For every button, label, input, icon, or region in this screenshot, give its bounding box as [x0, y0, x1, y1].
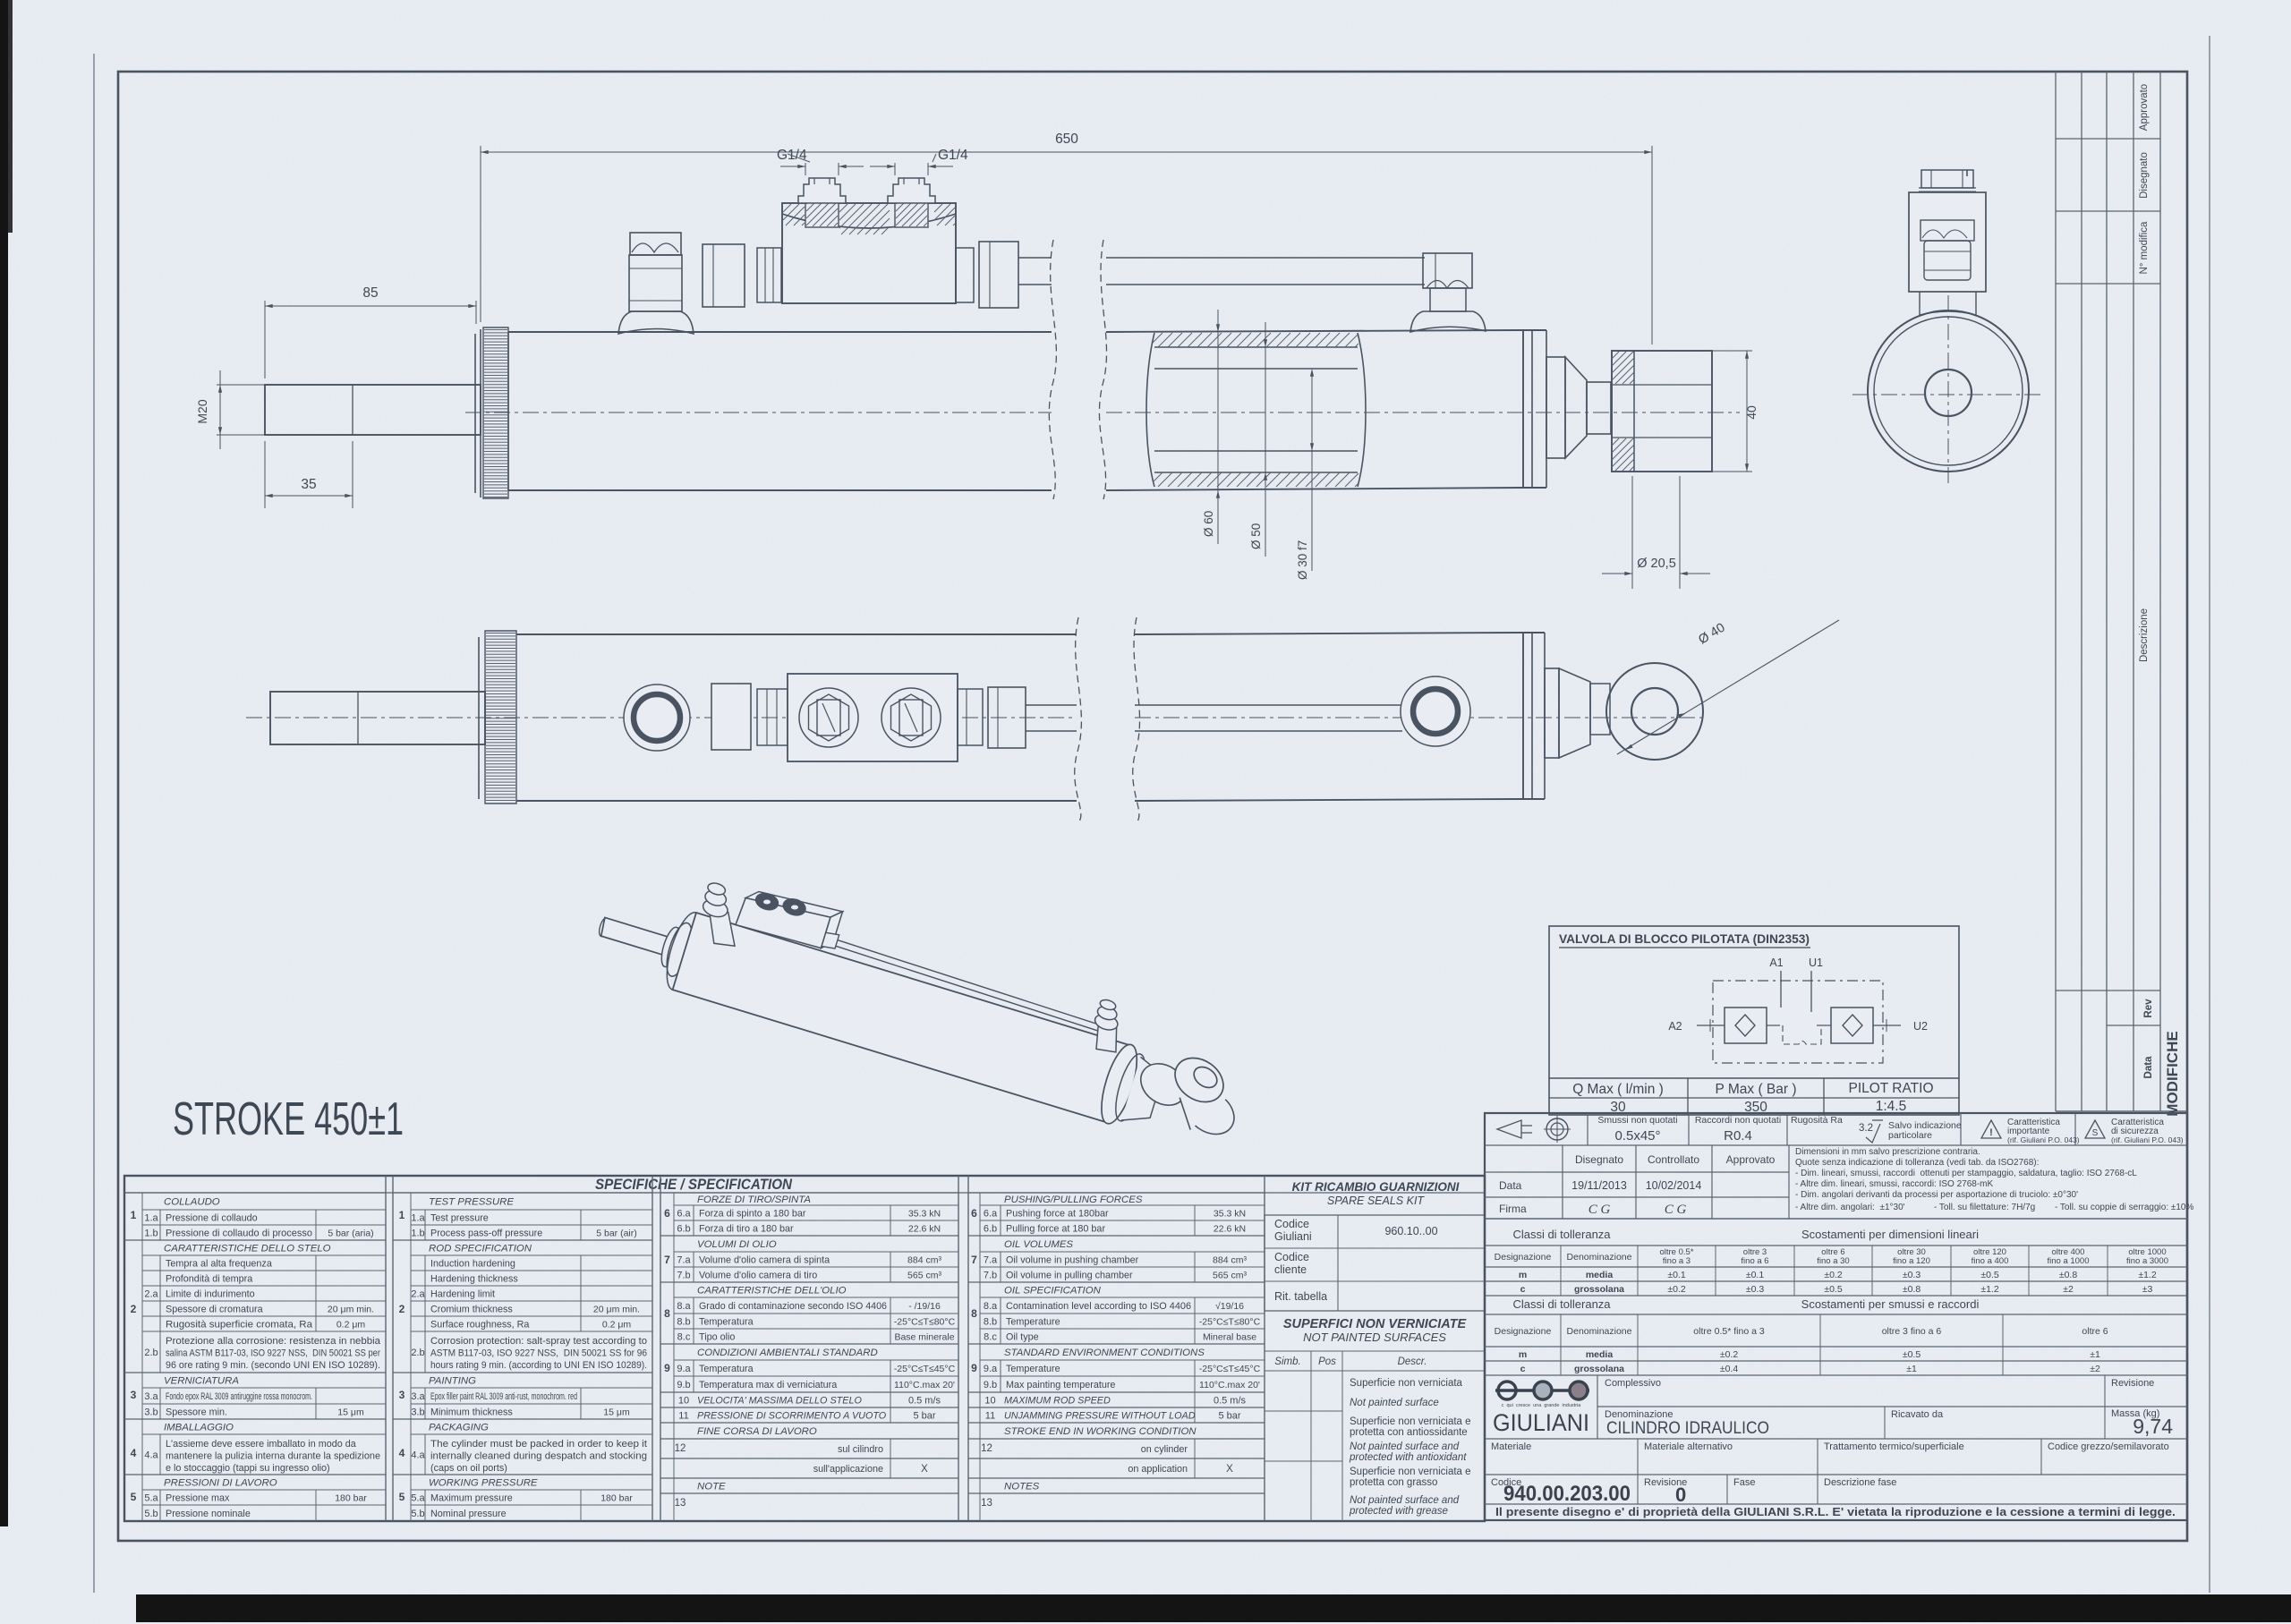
svg-text:Simb.: Simb. [1274, 1356, 1300, 1367]
svg-text:940.00.203.00: 940.00.203.00 [1503, 1482, 1631, 1506]
svg-text:Codice: Codice [1274, 1251, 1309, 1263]
svg-text:sull'applicazione: sull'applicazione [813, 1464, 883, 1475]
svg-text:- Altre dim. angolari: ±1°30': - Altre dim. angolari: ±1°30' [1795, 1203, 1905, 1212]
svg-text:VERNICIATURA: VERNICIATURA [164, 1376, 239, 1387]
svg-text:Designazione: Designazione [1495, 1252, 1552, 1263]
svg-text:Forza di spinto a 180 bar: Forza di spinto a 180 bar [699, 1209, 806, 1220]
svg-text:m: m [1519, 1349, 1527, 1360]
svg-text:Data: Data [2143, 1056, 2154, 1079]
svg-text:on application: on application [1128, 1464, 1188, 1475]
svg-text:6: 6 [971, 1207, 977, 1220]
svg-text:9.b: 9.b [677, 1380, 690, 1390]
svg-text:(rif. Giuliani P.O. 043): (rif. Giuliani P.O. 043) [2111, 1135, 2184, 1144]
svg-text:Approvato: Approvato [2139, 84, 2150, 131]
svg-text:SPECIFICHE / SPECIFICATION: SPECIFICHE / SPECIFICATION [595, 1176, 793, 1193]
svg-text:Fase: Fase [1733, 1477, 1755, 1488]
svg-text:Classi di tolleranza: Classi di tolleranza [1512, 1297, 1611, 1311]
svg-text:UNJAMMING PRESSURE WITHOUT LOA: UNJAMMING PRESSURE WITHOUT LOAD [1004, 1411, 1196, 1422]
svg-text:Superficie non verniciata e: Superficie non verniciata e [1350, 1416, 1471, 1427]
svg-text:15 μm: 15 μm [603, 1407, 630, 1418]
svg-text:G1/4: G1/4 [938, 148, 968, 163]
svg-text:VALVOLA DI BLOCCO PILOTATA (DI: VALVOLA DI BLOCCO PILOTATA (DIN2353) [1559, 932, 1810, 946]
svg-text:Classi di tolleranza: Classi di tolleranza [1512, 1228, 1611, 1241]
svg-text:Hardening thickness: Hardening thickness [430, 1274, 518, 1285]
svg-text:Pushing force at 180bar: Pushing force at 180bar [1006, 1209, 1109, 1220]
svg-text:11: 11 [985, 1411, 995, 1422]
svg-text:Protezione alla corrosione: re: Protezione alla corrosione: resistenza i… [166, 1336, 380, 1347]
svg-text:Maximum pressure: Maximum pressure [430, 1493, 513, 1504]
svg-text:NOT PAINTED SURFACES: NOT PAINTED SURFACES [1303, 1331, 1446, 1344]
svg-text:PRESSIONE DI SCORRIMENTO A VUO: PRESSIONE DI SCORRIMENTO A VUOTO [697, 1411, 887, 1422]
svg-text:11: 11 [678, 1411, 688, 1422]
svg-text:- Altre dim. lineari, smussi,: - Altre dim. lineari, smussi, raccordi: … [1795, 1179, 1994, 1189]
svg-text:Induction hardening: Induction hardening [430, 1259, 515, 1270]
svg-text:3.b: 3.b [411, 1407, 424, 1418]
svg-text:5.b: 5.b [411, 1509, 424, 1519]
svg-text:Denominazione: Denominazione [1567, 1326, 1632, 1337]
svg-text:R0.4: R0.4 [1724, 1128, 1752, 1144]
svg-text:±1: ±1 [2090, 1349, 2100, 1360]
svg-text:- Dim. angolari derivanti da p: - Dim. angolari derivanti da processi pe… [1795, 1190, 2078, 1200]
svg-text:Fondo epox RAL 3009 antiruggin: Fondo epox RAL 3009 antiruggine rossa mo… [166, 1391, 312, 1402]
svg-text:- Dim. lineari, smussi, raccor: - Dim. lineari, smussi, raccordi ottenut… [1795, 1169, 2137, 1178]
svg-text:1.b: 1.b [144, 1229, 158, 1239]
svg-text:√19/16: √19/16 [1215, 1301, 1244, 1312]
svg-text:110°C.max 20': 110°C.max 20' [1199, 1380, 1260, 1390]
svg-text:4.a: 4.a [411, 1450, 425, 1461]
svg-text:The cylinder must be packed in: The cylinder must be packed in order to … [430, 1439, 647, 1450]
svg-text:Ø 60: Ø 60 [1202, 511, 1215, 537]
svg-text:9.b: 9.b [984, 1380, 997, 1390]
svg-text:Disegnato: Disegnato [2139, 152, 2150, 199]
svg-text:3.a: 3.a [144, 1391, 158, 1402]
svg-text:1:4.5: 1:4.5 [1876, 1099, 1906, 1114]
svg-text:N° modifica: N° modifica [2139, 221, 2150, 275]
svg-text:fino a 120: fino a 120 [1893, 1256, 1930, 1266]
svg-text:mantenere la pulizia interna d: mantenere la pulizia interna durante la … [166, 1451, 380, 1462]
svg-text:Ø 30 f7: Ø 30 f7 [1296, 540, 1309, 580]
svg-text:oltre 3 fino a 6: oltre 3 fino a 6 [1882, 1326, 1942, 1337]
svg-text:Revisione: Revisione [2111, 1378, 2154, 1389]
svg-text:fino a 3: fino a 3 [1663, 1256, 1691, 1266]
svg-text:NOTES: NOTES [1004, 1482, 1040, 1492]
svg-text:Pressione max: Pressione max [166, 1493, 230, 1504]
svg-text:Smussi non quotati: Smussi non quotati [1597, 1115, 1677, 1126]
svg-text:884 cm³: 884 cm³ [907, 1255, 941, 1266]
svg-text:C G: C G [1665, 1203, 1687, 1217]
svg-text:SUPERFICI NON VERNICIATE: SUPERFICI NON VERNICIATE [1283, 1317, 1468, 1331]
svg-text:Test pressure: Test pressure [430, 1213, 489, 1224]
svg-text:L'assieme deve essere imballat: L'assieme deve essere imballato in modo … [166, 1439, 356, 1450]
svg-text:c qui cresce una grande i: c qui cresce una grande industria [1502, 1403, 1582, 1408]
svg-text:Superficie non verniciata e: Superficie non verniciata e [1350, 1467, 1471, 1477]
svg-text:STROKE END IN WORKING CONDITIO: STROKE END IN WORKING CONDITION [1004, 1426, 1197, 1437]
svg-text:22.6 kN: 22.6 kN [908, 1224, 941, 1235]
svg-text:9: 9 [971, 1362, 977, 1374]
svg-text:Rev: Rev [2143, 999, 2154, 1018]
svg-text:3.b: 3.b [144, 1407, 158, 1418]
svg-text:Temperatura max di verniciatur: Temperatura max di verniciatura [699, 1380, 837, 1390]
svg-text:c: c [1520, 1284, 1526, 1295]
svg-text:media: media [1586, 1270, 1614, 1280]
svg-text:110°C.max 20': 110°C.max 20' [894, 1380, 955, 1390]
svg-text:±0.1: ±0.1 [1667, 1270, 1686, 1280]
svg-text:±0.1: ±0.1 [1746, 1270, 1765, 1280]
svg-text:CONDIZIONI AMBIENTALI STANDARD: CONDIZIONI AMBIENTALI STANDARD [697, 1348, 878, 1358]
svg-text:2.a: 2.a [144, 1289, 158, 1300]
svg-text:6.b: 6.b [984, 1224, 997, 1235]
svg-text:2: 2 [131, 1303, 137, 1315]
svg-text:Tempra al alta frequenza: Tempra al alta frequenza [166, 1259, 272, 1270]
svg-text:7.b: 7.b [984, 1271, 997, 1281]
svg-text:Profondità di tempra: Profondità di tempra [166, 1274, 252, 1285]
svg-text:U2: U2 [1913, 1020, 1928, 1033]
svg-text:Temperature: Temperature [1006, 1364, 1060, 1374]
svg-text:Oil type: Oil type [1006, 1332, 1039, 1343]
svg-text:Ø 20,5: Ø 20,5 [1637, 557, 1676, 571]
svg-text:Rit. tabella: Rit. tabella [1274, 1290, 1327, 1303]
svg-text:5 bar (air): 5 bar (air) [596, 1229, 637, 1239]
svg-text:7.b: 7.b [677, 1271, 690, 1281]
svg-text:Not painted surface and: Not painted surface and [1350, 1441, 1460, 1452]
svg-text:4: 4 [131, 1447, 137, 1459]
svg-text:-25°C≤T≤45°C: -25°C≤T≤45°C [1199, 1364, 1261, 1374]
svg-text:-25°C≤T≤45°C: -25°C≤T≤45°C [894, 1364, 956, 1374]
svg-text:1: 1 [131, 1209, 137, 1221]
svg-text:7.a: 7.a [677, 1255, 691, 1266]
svg-text:PAINTING: PAINTING [429, 1376, 476, 1387]
svg-text:CILINDRO IDRAULICO: CILINDRO IDRAULICO [1606, 1418, 1769, 1438]
svg-text:7: 7 [664, 1254, 670, 1266]
svg-text:Designazione: Designazione [1495, 1326, 1552, 1337]
svg-text:Codice: Codice [1274, 1218, 1309, 1230]
svg-text:2: 2 [399, 1303, 405, 1315]
svg-text:Scostamenti per dimensioni lin: Scostamenti per dimensioni lineari [1801, 1228, 1979, 1241]
svg-text:3.2: 3.2 [1859, 1123, 1873, 1134]
svg-text:Forza di tiro a 180 bar: Forza di tiro a 180 bar [699, 1224, 794, 1235]
svg-text:Dimensioni in mm salvo prescri: Dimensioni in mm salvo prescrizione cont… [1795, 1147, 1980, 1157]
svg-text:grossolana: grossolana [1574, 1364, 1624, 1374]
svg-text:VOLUMI DI OLIO: VOLUMI DI OLIO [697, 1239, 777, 1250]
svg-text:oltre 6: oltre 6 [2082, 1326, 2108, 1337]
svg-text:Tipo olio: Tipo olio [699, 1332, 735, 1343]
svg-text:±0.2: ±0.2 [1667, 1284, 1686, 1295]
svg-text:TEST PRESSURE: TEST PRESSURE [429, 1197, 514, 1208]
svg-text:±1: ±1 [1906, 1364, 1917, 1374]
svg-text:565 cm³: 565 cm³ [1213, 1271, 1247, 1281]
svg-text:8: 8 [664, 1307, 670, 1320]
svg-text:40: 40 [1744, 405, 1759, 420]
svg-text:Firma: Firma [1499, 1203, 1527, 1215]
svg-text:-25°C≤T≤80°C: -25°C≤T≤80°C [1199, 1317, 1261, 1328]
svg-text:Minimum thickness: Minimum thickness [430, 1407, 513, 1418]
svg-text:8: 8 [971, 1307, 977, 1320]
svg-text:e lo stoccaggio (tappi su ingr: e lo stoccaggio (tappi su ingresso olio) [166, 1463, 330, 1474]
svg-text:MODIFICHE: MODIFICHE [2164, 1031, 2181, 1116]
svg-text:Materiale alternativo: Materiale alternativo [1644, 1441, 1733, 1452]
svg-text:20 μm min.: 20 μm min. [593, 1305, 640, 1315]
svg-text:35: 35 [301, 477, 316, 492]
svg-text:salina ASTM B117-03, ISO 9227: salina ASTM B117-03, ISO 9227 NSS, DIN 5… [166, 1348, 380, 1359]
svg-text:OIL VOLUMES: OIL VOLUMES [1004, 1239, 1073, 1250]
svg-text:Il presente disegno e' di prop: Il presente disegno e' di proprietà dell… [1495, 1506, 2176, 1518]
svg-text:2.b: 2.b [411, 1348, 424, 1358]
svg-text:10: 10 [678, 1396, 689, 1407]
svg-text:3: 3 [131, 1389, 137, 1401]
svg-text:3.a: 3.a [411, 1391, 425, 1402]
svg-text:5: 5 [399, 1491, 405, 1503]
svg-text:FINE CORSA DI LAVORO: FINE CORSA DI LAVORO [697, 1426, 817, 1437]
svg-text:Oil volume in pushing chamber: Oil volume in pushing chamber [1006, 1255, 1139, 1266]
svg-text:Giuliani: Giuliani [1274, 1230, 1312, 1243]
svg-text:Spessore min.: Spessore min. [166, 1407, 227, 1418]
svg-text:FORZE DI TIRO/SPINTA: FORZE DI TIRO/SPINTA [697, 1195, 811, 1205]
svg-text:±0.2: ±0.2 [1824, 1270, 1843, 1280]
svg-text:Scostamenti per smussi e racco: Scostamenti per smussi e raccordi [1801, 1297, 1980, 1311]
svg-text:180 bar: 180 bar [335, 1493, 367, 1504]
svg-text:PUSHING/PULLING FORCES: PUSHING/PULLING FORCES [1004, 1195, 1143, 1205]
svg-text:ROD SPECIFICATION: ROD SPECIFICATION [429, 1244, 532, 1254]
svg-text:±2: ±2 [2090, 1364, 2100, 1374]
svg-text:WORKING PRESSURE: WORKING PRESSURE [429, 1478, 538, 1489]
svg-text:0.2 μm: 0.2 μm [602, 1320, 632, 1331]
svg-text:particolare: particolare [1888, 1130, 1932, 1141]
svg-text:PRESSIONI DI LAVORO: PRESSIONI DI LAVORO [164, 1478, 277, 1489]
svg-text:U1: U1 [1809, 957, 1823, 969]
svg-text:180 bar: 180 bar [600, 1493, 633, 1504]
svg-text:fino a 30: fino a 30 [1817, 1256, 1849, 1266]
svg-text:Descrizione fase: Descrizione fase [1824, 1477, 1896, 1488]
svg-text:Base minerale: Base minerale [894, 1332, 954, 1343]
svg-text:Cromium thickness: Cromium thickness [430, 1305, 513, 1315]
svg-text:Surface roughness, Ra: Surface roughness, Ra [430, 1320, 529, 1331]
svg-text:Corrosion protection: salt-spr: Corrosion protection: salt-spray test ac… [430, 1336, 647, 1347]
svg-text:6.a: 6.a [677, 1209, 691, 1220]
svg-text:9: 9 [664, 1362, 670, 1374]
svg-text:8.b: 8.b [984, 1317, 997, 1328]
svg-text:8.b: 8.b [677, 1317, 690, 1328]
svg-text:15 μm: 15 μm [337, 1407, 364, 1418]
svg-text:3: 3 [399, 1389, 405, 1401]
svg-text:±2: ±2 [2063, 1284, 2074, 1295]
svg-text:Pressione di collaudo: Pressione di collaudo [166, 1213, 258, 1224]
svg-text:GIULIANI: GIULIANI [1493, 1409, 1589, 1436]
svg-text:85: 85 [362, 285, 378, 301]
svg-text:Grado di contaminazione second: Grado di contaminazione secondo ISO 4406 [699, 1301, 887, 1312]
svg-text:Rugosità Ra: Rugosità Ra [1791, 1115, 1843, 1126]
svg-text:Oil volume in pulling chamber: Oil volume in pulling chamber [1006, 1271, 1133, 1281]
svg-text:2.a: 2.a [411, 1289, 425, 1300]
svg-text:12: 12 [981, 1443, 992, 1454]
svg-text:±0.2: ±0.2 [1720, 1349, 1739, 1360]
svg-text:Pulling force at 180 bar: Pulling force at 180 bar [1006, 1224, 1105, 1235]
svg-text:Pressione nominale: Pressione nominale [166, 1509, 251, 1519]
svg-text:Not painted surface and: Not painted surface and [1350, 1495, 1460, 1506]
svg-text:0.5x45°: 0.5x45° [1614, 1128, 1660, 1144]
svg-text:6.b: 6.b [677, 1224, 690, 1235]
svg-text:Complessivo: Complessivo [1605, 1378, 1661, 1389]
svg-text:Hardening limit: Hardening limit [430, 1289, 495, 1300]
svg-text:Temperature: Temperature [1006, 1317, 1060, 1328]
svg-text:Superficie non verniciata: Superficie non verniciata [1350, 1378, 1463, 1389]
svg-text:IMBALLAGGIO: IMBALLAGGIO [164, 1423, 234, 1433]
svg-text:cliente: cliente [1274, 1263, 1307, 1276]
svg-text:Rugosità superficie cromata, R: Rugosità superficie cromata, Ra [166, 1320, 312, 1331]
svg-text:Volume d'olio camera di spinta: Volume d'olio camera di spinta [699, 1255, 830, 1266]
svg-text:Trattamento termico/superficia: Trattamento termico/superficiale [1824, 1441, 1964, 1452]
svg-text:SPARE SEALS KIT: SPARE SEALS KIT [1327, 1195, 1426, 1207]
svg-text:±0.8: ±0.8 [1903, 1284, 1921, 1295]
svg-text:1.a: 1.a [411, 1213, 425, 1224]
svg-text:grossolana: grossolana [1574, 1284, 1624, 1295]
svg-text:Process pass-off pressure: Process pass-off pressure [430, 1229, 542, 1239]
svg-text:protected with antioxidant: protected with antioxidant [1349, 1452, 1467, 1463]
svg-text:A2: A2 [1668, 1020, 1682, 1033]
svg-text:7.a: 7.a [984, 1255, 998, 1266]
svg-text:Pos: Pos [1318, 1356, 1336, 1367]
svg-text:oltre 0.5* fino a 3: oltre 0.5* fino a 3 [1693, 1326, 1765, 1337]
svg-text:Volume d'olio camera di tiro: Volume d'olio camera di tiro [699, 1271, 817, 1281]
svg-text:±0.5: ±0.5 [1824, 1284, 1843, 1295]
svg-text:5 bar: 5 bar [1218, 1411, 1240, 1422]
svg-text:C G: C G [1588, 1203, 1611, 1217]
svg-text:Disegnato: Disegnato [1575, 1153, 1623, 1166]
svg-text:22.6 kN: 22.6 kN [1214, 1224, 1246, 1235]
svg-text:Mineral base: Mineral base [1203, 1332, 1256, 1343]
svg-text:PACKAGING: PACKAGING [429, 1423, 489, 1433]
svg-text:35.3 kN: 35.3 kN [1214, 1209, 1246, 1220]
svg-text:Controllato: Controllato [1648, 1153, 1699, 1166]
svg-text:8.a: 8.a [677, 1301, 691, 1312]
svg-text:Raccordi non quotati: Raccordi non quotati [1695, 1115, 1781, 1126]
svg-text:6.a: 6.a [984, 1209, 998, 1220]
svg-text:±0.8: ±0.8 [2059, 1270, 2078, 1280]
svg-text:13: 13 [675, 1498, 686, 1509]
svg-text:35.3 kN: 35.3 kN [908, 1209, 941, 1220]
svg-text:!: ! [1989, 1127, 1993, 1138]
svg-text:Limite di indurimento: Limite di indurimento [166, 1289, 255, 1300]
svg-text:Descrizione: Descrizione [2139, 608, 2150, 662]
svg-text:M20: M20 [195, 399, 209, 423]
svg-text:6: 6 [664, 1207, 670, 1220]
svg-text:±0.3: ±0.3 [1903, 1270, 1921, 1280]
svg-text:Pressione di collaudo di proce: Pressione di collaudo di processo [166, 1229, 312, 1239]
svg-text:Denominazione: Denominazione [1567, 1252, 1632, 1263]
svg-text:Ricavato da: Ricavato da [1891, 1409, 1944, 1420]
svg-text:1.b: 1.b [411, 1229, 424, 1239]
svg-text:sul cilindro: sul cilindro [838, 1444, 883, 1455]
svg-text:internally cleaned during desp: internally cleaned during despatch and s… [430, 1451, 647, 1462]
svg-text:±1.2: ±1.2 [2138, 1270, 2157, 1280]
svg-text:m: m [1519, 1270, 1527, 1280]
svg-text:5: 5 [131, 1491, 137, 1503]
svg-text:STANDARD ENVIRONMENT CONDITION: STANDARD ENVIRONMENT CONDITIONS [1004, 1348, 1205, 1358]
svg-text:Temperatura: Temperatura [699, 1317, 754, 1328]
svg-text:fino a 400: fino a 400 [1972, 1256, 2009, 1266]
svg-text:ASTM B117-03, ISO 9227 NSS, D: ASTM B117-03, ISO 9227 NSS, DIN 50021 SS… [430, 1348, 647, 1359]
svg-text:OIL SPECIFICATION: OIL SPECIFICATION [1004, 1286, 1102, 1297]
svg-text:20 μm min.: 20 μm min. [328, 1305, 374, 1315]
svg-text:±0.3: ±0.3 [1746, 1284, 1765, 1295]
svg-text:5 bar: 5 bar [913, 1411, 935, 1422]
svg-text:9,74: 9,74 [2133, 1415, 2173, 1438]
svg-text:Not painted surface: Not painted surface [1350, 1398, 1439, 1408]
svg-text:10: 10 [984, 1396, 995, 1407]
svg-text:0.5 m/s: 0.5 m/s [908, 1396, 941, 1407]
svg-text:STROKE 450±1: STROKE 450±1 [173, 1093, 404, 1145]
svg-text:- Toll. su coppie di serraggio: - Toll. su coppie di serraggio: ±10% [2055, 1203, 2193, 1212]
svg-text:S: S [2092, 1128, 2099, 1138]
svg-text:A1: A1 [1769, 957, 1783, 969]
svg-text:4.a: 4.a [144, 1450, 158, 1461]
svg-text:Ø 50: Ø 50 [1249, 523, 1263, 549]
svg-text:960.10..00: 960.10..00 [1384, 1225, 1437, 1237]
svg-text:- Toll. su filettature: 7H/7g: - Toll. su filettature: 7H/7g [1934, 1203, 2035, 1212]
svg-text:0.5 m/s: 0.5 m/s [1214, 1396, 1247, 1407]
svg-text:Nominal pressure: Nominal pressure [430, 1509, 507, 1519]
svg-text:hours rating 9 min. (according: hours rating 9 min. (according to UNI EN… [430, 1360, 647, 1371]
svg-text:650: 650 [1055, 132, 1078, 147]
svg-text:1.a: 1.a [144, 1213, 158, 1224]
svg-text:(caps on oil ports): (caps on oil ports) [430, 1463, 507, 1474]
svg-text:5 bar (aria): 5 bar (aria) [328, 1229, 373, 1239]
svg-text:-25°C≤T≤80°C: -25°C≤T≤80°C [894, 1317, 956, 1328]
svg-text:565 cm³: 565 cm³ [907, 1271, 941, 1281]
svg-text:5.a: 5.a [411, 1493, 425, 1504]
svg-text:MAXIMUM ROD SPEED: MAXIMUM ROD SPEED [1004, 1396, 1111, 1407]
svg-text:8.a: 8.a [984, 1301, 998, 1312]
svg-text:5.b: 5.b [144, 1509, 158, 1519]
svg-text:media: media [1586, 1349, 1614, 1360]
svg-text:Quote senza indicazione di tol: Quote senza indicazione di tolleranza (v… [1795, 1158, 2039, 1168]
svg-text:KIT RICAMBIO GUARNIZIONI: KIT RICAMBIO GUARNIZIONI [1292, 1180, 1460, 1194]
svg-text:VELOCITA' MASSIMA DELLO STELO: VELOCITA' MASSIMA DELLO STELO [697, 1396, 862, 1407]
svg-text:X: X [921, 1464, 928, 1475]
svg-text:Data: Data [1499, 1179, 1522, 1192]
svg-text:CARATTERISTICHE DELLO STELO: CARATTERISTICHE DELLO STELO [164, 1244, 331, 1254]
svg-text:±0.4: ±0.4 [1720, 1364, 1739, 1374]
svg-text:884 cm³: 884 cm³ [1213, 1255, 1247, 1266]
svg-text:12: 12 [675, 1443, 686, 1454]
svg-text:7: 7 [971, 1254, 977, 1266]
svg-text:±1.2: ±1.2 [1980, 1284, 1999, 1295]
svg-text:9.a: 9.a [677, 1364, 691, 1374]
svg-text:protected with grease: protected with grease [1349, 1506, 1448, 1517]
svg-text:fino a 3000: fino a 3000 [2126, 1256, 2168, 1266]
svg-text:on cylinder: on cylinder [1141, 1444, 1188, 1455]
svg-text:13: 13 [981, 1498, 992, 1509]
svg-text:8.c: 8.c [984, 1332, 997, 1343]
svg-text:96 ore rating 9 min. (secondo: 96 ore rating 9 min. (secondo UNI EN ISO… [166, 1360, 380, 1371]
svg-text:0.2 μm: 0.2 μm [336, 1320, 366, 1331]
svg-text:PILOT RATIO: PILOT RATIO [1848, 1081, 1933, 1096]
svg-text:protetta con antiossidante: protetta con antiossidante [1350, 1427, 1468, 1438]
svg-text:9.a: 9.a [984, 1364, 998, 1374]
svg-text:Epox filler paint RAL 3009 ant: Epox filler paint RAL 3009 anti-rust, mo… [430, 1391, 577, 1402]
svg-text:±0.5: ±0.5 [1903, 1349, 1921, 1360]
svg-text:Max painting temperature: Max painting temperature [1006, 1380, 1115, 1390]
svg-text:fino a 1000: fino a 1000 [2047, 1256, 2089, 1266]
svg-text:±0.5: ±0.5 [1980, 1270, 1999, 1280]
svg-text:19/11/2013: 19/11/2013 [1571, 1179, 1627, 1192]
svg-text:(rif. Giuliani P.O. 043): (rif. Giuliani P.O. 043) [2007, 1135, 2080, 1144]
svg-text:COLLAUDO: COLLAUDO [164, 1197, 220, 1208]
svg-text:0: 0 [1675, 1484, 1686, 1506]
svg-text:5.a: 5.a [144, 1493, 158, 1504]
svg-text:CARATTERISTICHE DELL'OLIO: CARATTERISTICHE DELL'OLIO [697, 1286, 847, 1297]
svg-text:10/02/2014: 10/02/2014 [1646, 1179, 1702, 1192]
svg-text:8.c: 8.c [677, 1332, 691, 1343]
